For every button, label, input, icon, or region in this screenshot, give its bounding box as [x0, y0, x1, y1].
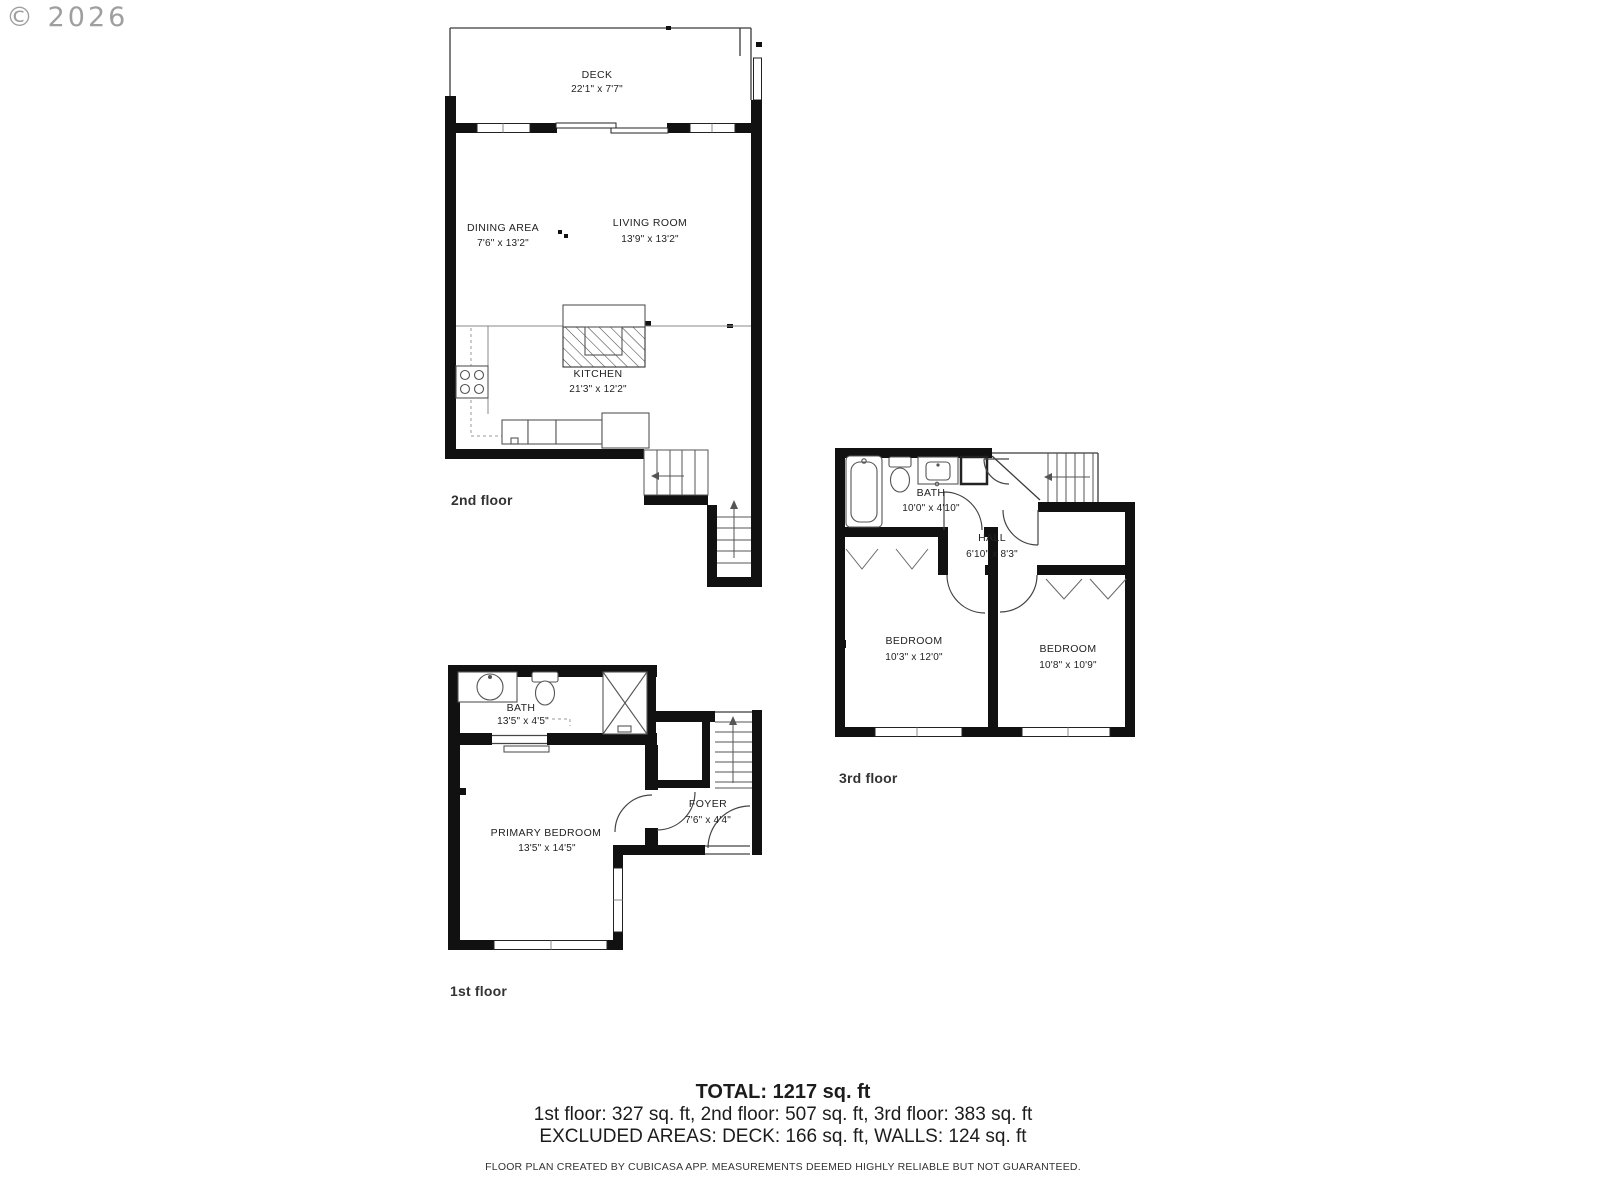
stair-arrow-left-icon	[651, 472, 659, 480]
excluded-areas-text: EXCLUDED AREAS: DECK: 166 sq. ft, WALLS:…	[0, 1126, 1566, 1148]
copyright-watermark: © 2026	[6, 2, 128, 33]
shower	[603, 672, 647, 734]
total-area-text: TOTAL: 1217 sq. ft	[0, 1080, 1566, 1104]
dishwasher	[502, 420, 528, 444]
stairs-1st	[715, 712, 752, 788]
floor-areas-text: 1st floor: 327 sq. ft, 2nd floor: 507 sq…	[0, 1104, 1566, 1126]
room-label-primary: PRIMARY BEDROOM	[491, 827, 602, 839]
kitchen-island	[563, 305, 645, 367]
stair-arrow-up-icon	[730, 500, 738, 509]
window-bed2	[1022, 728, 1110, 737]
floor-plan-page: © 2026	[0, 0, 1600, 1200]
room-label-dining: DINING AREA	[467, 222, 539, 234]
room-dims-living: 13'9" x 13'2"	[621, 234, 679, 245]
window-bedroom-right	[614, 868, 623, 932]
pocket-door	[492, 733, 549, 752]
room-dims-primary: 13'5" x 14'5"	[518, 843, 576, 854]
room-label-hall: HALL	[978, 532, 1006, 544]
room-label-foyer: FOYER	[689, 798, 727, 810]
window-bed1	[875, 728, 962, 737]
toilet	[889, 457, 911, 492]
room-label-bath1: BATH	[507, 702, 536, 714]
window-deck-left	[477, 124, 530, 133]
room-dims-bed1: 10'3" x 12'0"	[885, 652, 943, 663]
area-summary: TOTAL: 1217 sq. ft 1st floor: 327 sq. ft…	[0, 1080, 1566, 1173]
floor-plan-canvas: DECK 22'1" x 7'7" DINING AREA 7'6" x 13'…	[0, 0, 1600, 1200]
floor-label-3rd: 3rd floor	[839, 770, 898, 786]
room-label-deck: DECK	[582, 69, 613, 81]
room-dims-bath1: 13'5" x 4'5"	[497, 716, 549, 727]
vanity-sink	[458, 672, 517, 702]
wall-tick-1st	[460, 788, 466, 795]
base-cabinets	[502, 413, 649, 448]
room-dims-dining: 7'6" x 13'2"	[477, 238, 529, 249]
room-dims-bath3: 10'0" x 4'10"	[902, 503, 960, 514]
room-label-kitchen: KITCHEN	[574, 368, 623, 380]
room-label-bed1: BEDROOM	[885, 635, 942, 647]
stair-arrow-up-icon	[729, 716, 737, 725]
floor-label-2nd: 2nd floor	[451, 492, 513, 508]
room-dims-deck: 22'1" x 7'7"	[571, 84, 623, 95]
room-dims-bed2: 10'8" x 10'9"	[1039, 660, 1097, 671]
room-dims-kitchen: 21'3" x 12'2"	[569, 384, 627, 395]
toilet	[532, 672, 558, 705]
room-label-bed2: BEDROOM	[1039, 643, 1096, 655]
sink	[918, 457, 958, 484]
floor-plan-1st: BATH 13'5" x 4'5" PRIMARY BEDROOM 13'5" …	[448, 665, 762, 999]
floor-plan-2nd: DECK 22'1" x 7'7" DINING AREA 7'6" x 13'…	[445, 26, 762, 587]
disclaimer-text: FLOOR PLAN CREATED BY CUBICASA APP. MEAS…	[0, 1161, 1566, 1173]
floor-plan-3rd: BATH 10'0" x 4'10" HALL 6'10" x 8'3" BED…	[835, 448, 1135, 786]
window-bedroom-bottom	[494, 941, 607, 950]
stairs-3rd	[992, 453, 1098, 502]
room-label-bath3: BATH	[917, 487, 946, 499]
stairs-2nd	[644, 450, 751, 563]
stove	[456, 366, 488, 398]
room-label-living: LIVING ROOM	[613, 217, 687, 229]
window-deck-right	[690, 124, 735, 133]
bathtub	[846, 456, 882, 527]
room-dims-foyer: 7'6" x 4'4"	[685, 815, 731, 826]
floor-label-1st: 1st floor	[450, 983, 507, 999]
shower	[961, 457, 987, 484]
sliding-door	[556, 123, 668, 133]
room-dims-hall: 6'10" x 8'3"	[966, 549, 1018, 560]
dims-leader-dashed	[552, 719, 570, 726]
refrigerator	[602, 413, 649, 448]
